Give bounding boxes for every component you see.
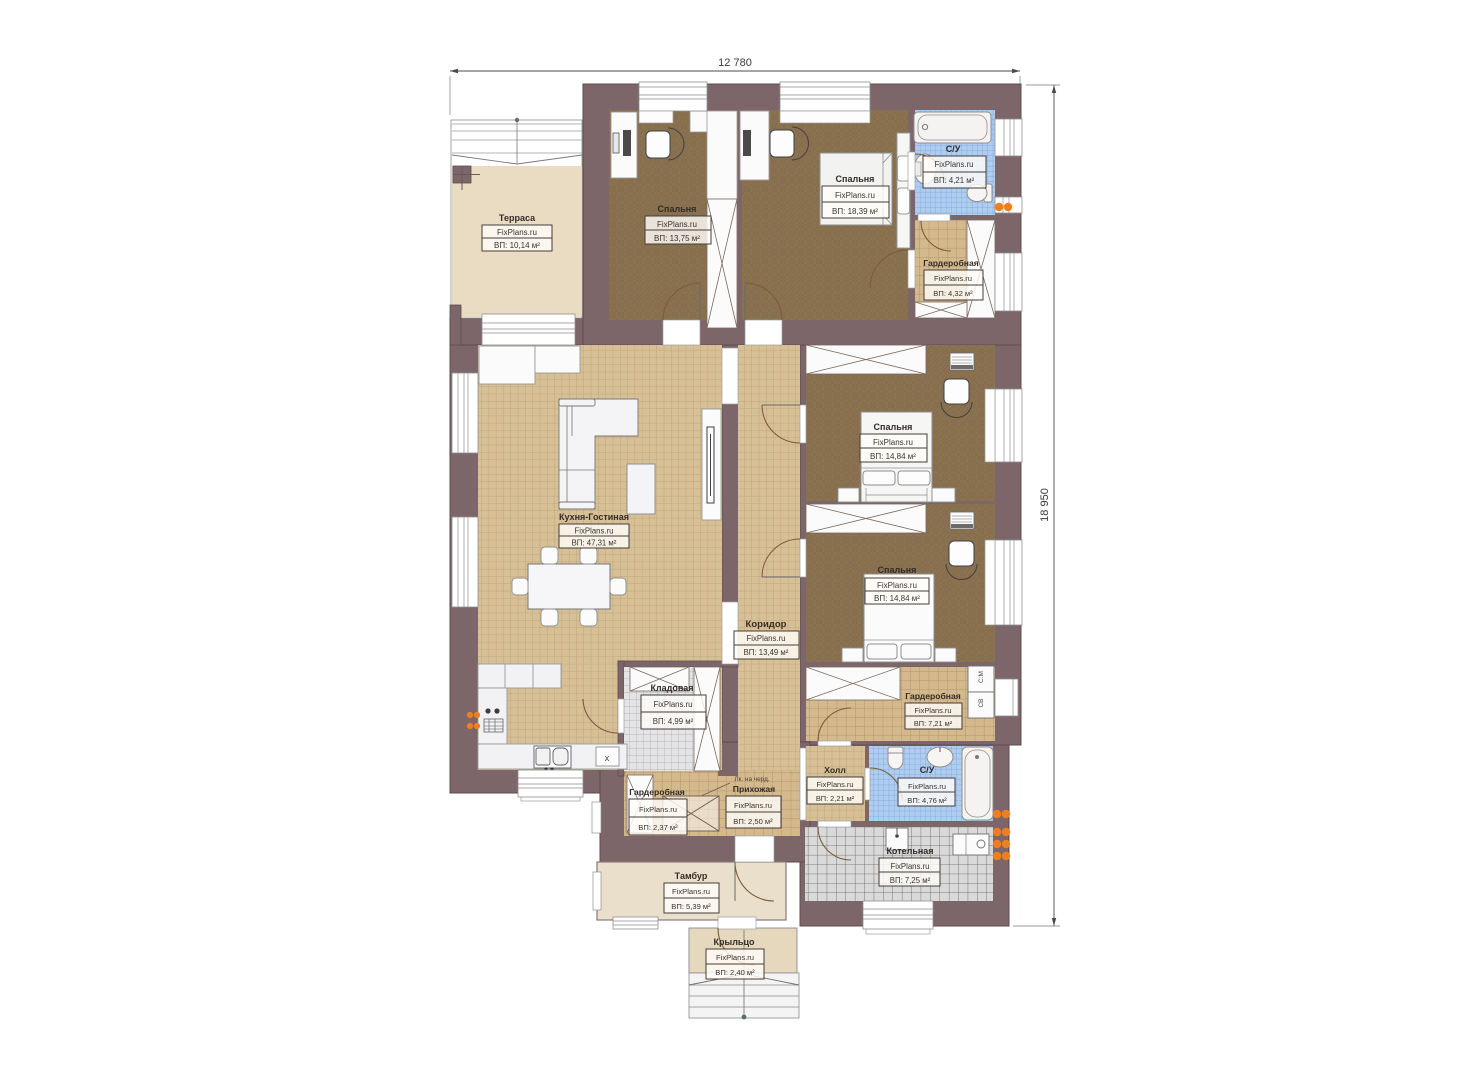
svg-text:Коридор: Коридор	[746, 619, 787, 630]
svg-text:FixPlans.ru: FixPlans.ru	[734, 801, 772, 810]
svg-text:FixPlans.ru: FixPlans.ru	[877, 581, 917, 590]
svg-text:ВП: 4,32 м²: ВП: 4,32 м²	[933, 289, 973, 298]
svg-text:ВП: 14,84 м²: ВП: 14,84 м²	[874, 594, 920, 603]
svg-text:ВП: 2,50 м²: ВП: 2,50 м²	[733, 817, 773, 826]
svg-text:С:М: С:М	[978, 671, 985, 683]
svg-text:ВП: 14,84 м²: ВП: 14,84 м²	[870, 452, 916, 461]
svg-text:FixPlans.ru: FixPlans.ru	[908, 782, 946, 791]
svg-text:FixPlans.ru: FixPlans.ru	[935, 160, 974, 169]
svg-text:FixPlans.ru: FixPlans.ru	[575, 527, 614, 536]
svg-text:FixPlans.ru: FixPlans.ru	[497, 228, 537, 237]
svg-text:Терраса: Терраса	[499, 213, 536, 223]
svg-text:Гардеробная: Гардеробная	[629, 787, 685, 797]
svg-text:FixPlans.ru: FixPlans.ru	[915, 706, 952, 715]
svg-text:ВП: 10,14 м²: ВП: 10,14 м²	[494, 241, 540, 250]
svg-text:ВП: 2,21 м²: ВП: 2,21 м²	[816, 794, 855, 803]
svg-text:ВП: 4,76 м²: ВП: 4,76 м²	[907, 796, 947, 805]
svg-text:FixPlans.ru: FixPlans.ru	[657, 220, 697, 229]
svg-text:FixPlans.ru: FixPlans.ru	[835, 191, 875, 200]
svg-text:Гардеробная: Гардеробная	[923, 258, 979, 268]
svg-text:Кухня-Гостиная: Кухня-Гостиная	[559, 512, 629, 522]
svg-text:Холл: Холл	[824, 765, 846, 775]
svg-text:FixPlans.ru: FixPlans.ru	[817, 780, 854, 789]
svg-text:ВП: 7,21 м²: ВП: 7,21 м²	[914, 719, 953, 728]
svg-text:СВ: СВ	[978, 698, 985, 707]
svg-text:ВП: 18,39 м²: ВП: 18,39 м²	[832, 207, 878, 216]
svg-text:FixPlans.ru: FixPlans.ru	[873, 438, 913, 447]
svg-text:12 780: 12 780	[718, 57, 752, 69]
svg-text:FixPlans.ru: FixPlans.ru	[747, 634, 786, 643]
svg-text:Гардеробная: Гардеробная	[905, 691, 961, 701]
svg-text:ВП: 4,21 м²: ВП: 4,21 м²	[934, 176, 975, 185]
svg-text:ВП: 2,40 м²: ВП: 2,40 м²	[715, 968, 755, 977]
svg-text:Крыльцо: Крыльцо	[714, 937, 755, 947]
svg-text:Спальня: Спальня	[836, 174, 875, 184]
svg-text:ВП: 13,75 м²: ВП: 13,75 м²	[654, 234, 700, 243]
svg-text:Спальня: Спальня	[658, 204, 697, 214]
svg-text:Лк. на черд.: Лк. на черд.	[734, 776, 769, 783]
svg-text:FixPlans.ru: FixPlans.ru	[891, 862, 930, 871]
svg-text:FixPlans.ru: FixPlans.ru	[654, 700, 693, 709]
svg-text:Котельная: Котельная	[886, 846, 933, 856]
svg-text:ВП: 4,99 м²: ВП: 4,99 м²	[653, 717, 694, 726]
svg-text:ВП: 13,49 м²: ВП: 13,49 м²	[744, 648, 789, 657]
svg-text:Тамбур: Тамбур	[675, 871, 708, 881]
svg-text:Спальня: Спальня	[878, 565, 917, 575]
svg-text:FixPlans.ru: FixPlans.ru	[639, 805, 677, 814]
svg-text:FixPlans.ru: FixPlans.ru	[716, 953, 754, 962]
svg-text:Прихожая: Прихожая	[733, 784, 775, 794]
svg-text:ВП: 2,37 м²: ВП: 2,37 м²	[638, 823, 678, 832]
svg-text:ВП: 47,31 м²: ВП: 47,31 м²	[572, 539, 617, 548]
svg-text:18 950: 18 950	[1039, 488, 1051, 522]
svg-text:ВП: 7,25 м²: ВП: 7,25 м²	[890, 876, 931, 885]
svg-text:x: x	[605, 753, 610, 763]
svg-text:Спальня: Спальня	[874, 422, 913, 432]
svg-text:С/У: С/У	[920, 765, 935, 775]
svg-text:Кладовая: Кладовая	[650, 683, 693, 693]
svg-text:ВП: 5,39 м²: ВП: 5,39 м²	[671, 902, 711, 911]
svg-text:FixPlans.ru: FixPlans.ru	[672, 887, 710, 896]
svg-text:С/У: С/У	[946, 144, 961, 154]
svg-text:FixPlans.ru: FixPlans.ru	[934, 274, 972, 283]
